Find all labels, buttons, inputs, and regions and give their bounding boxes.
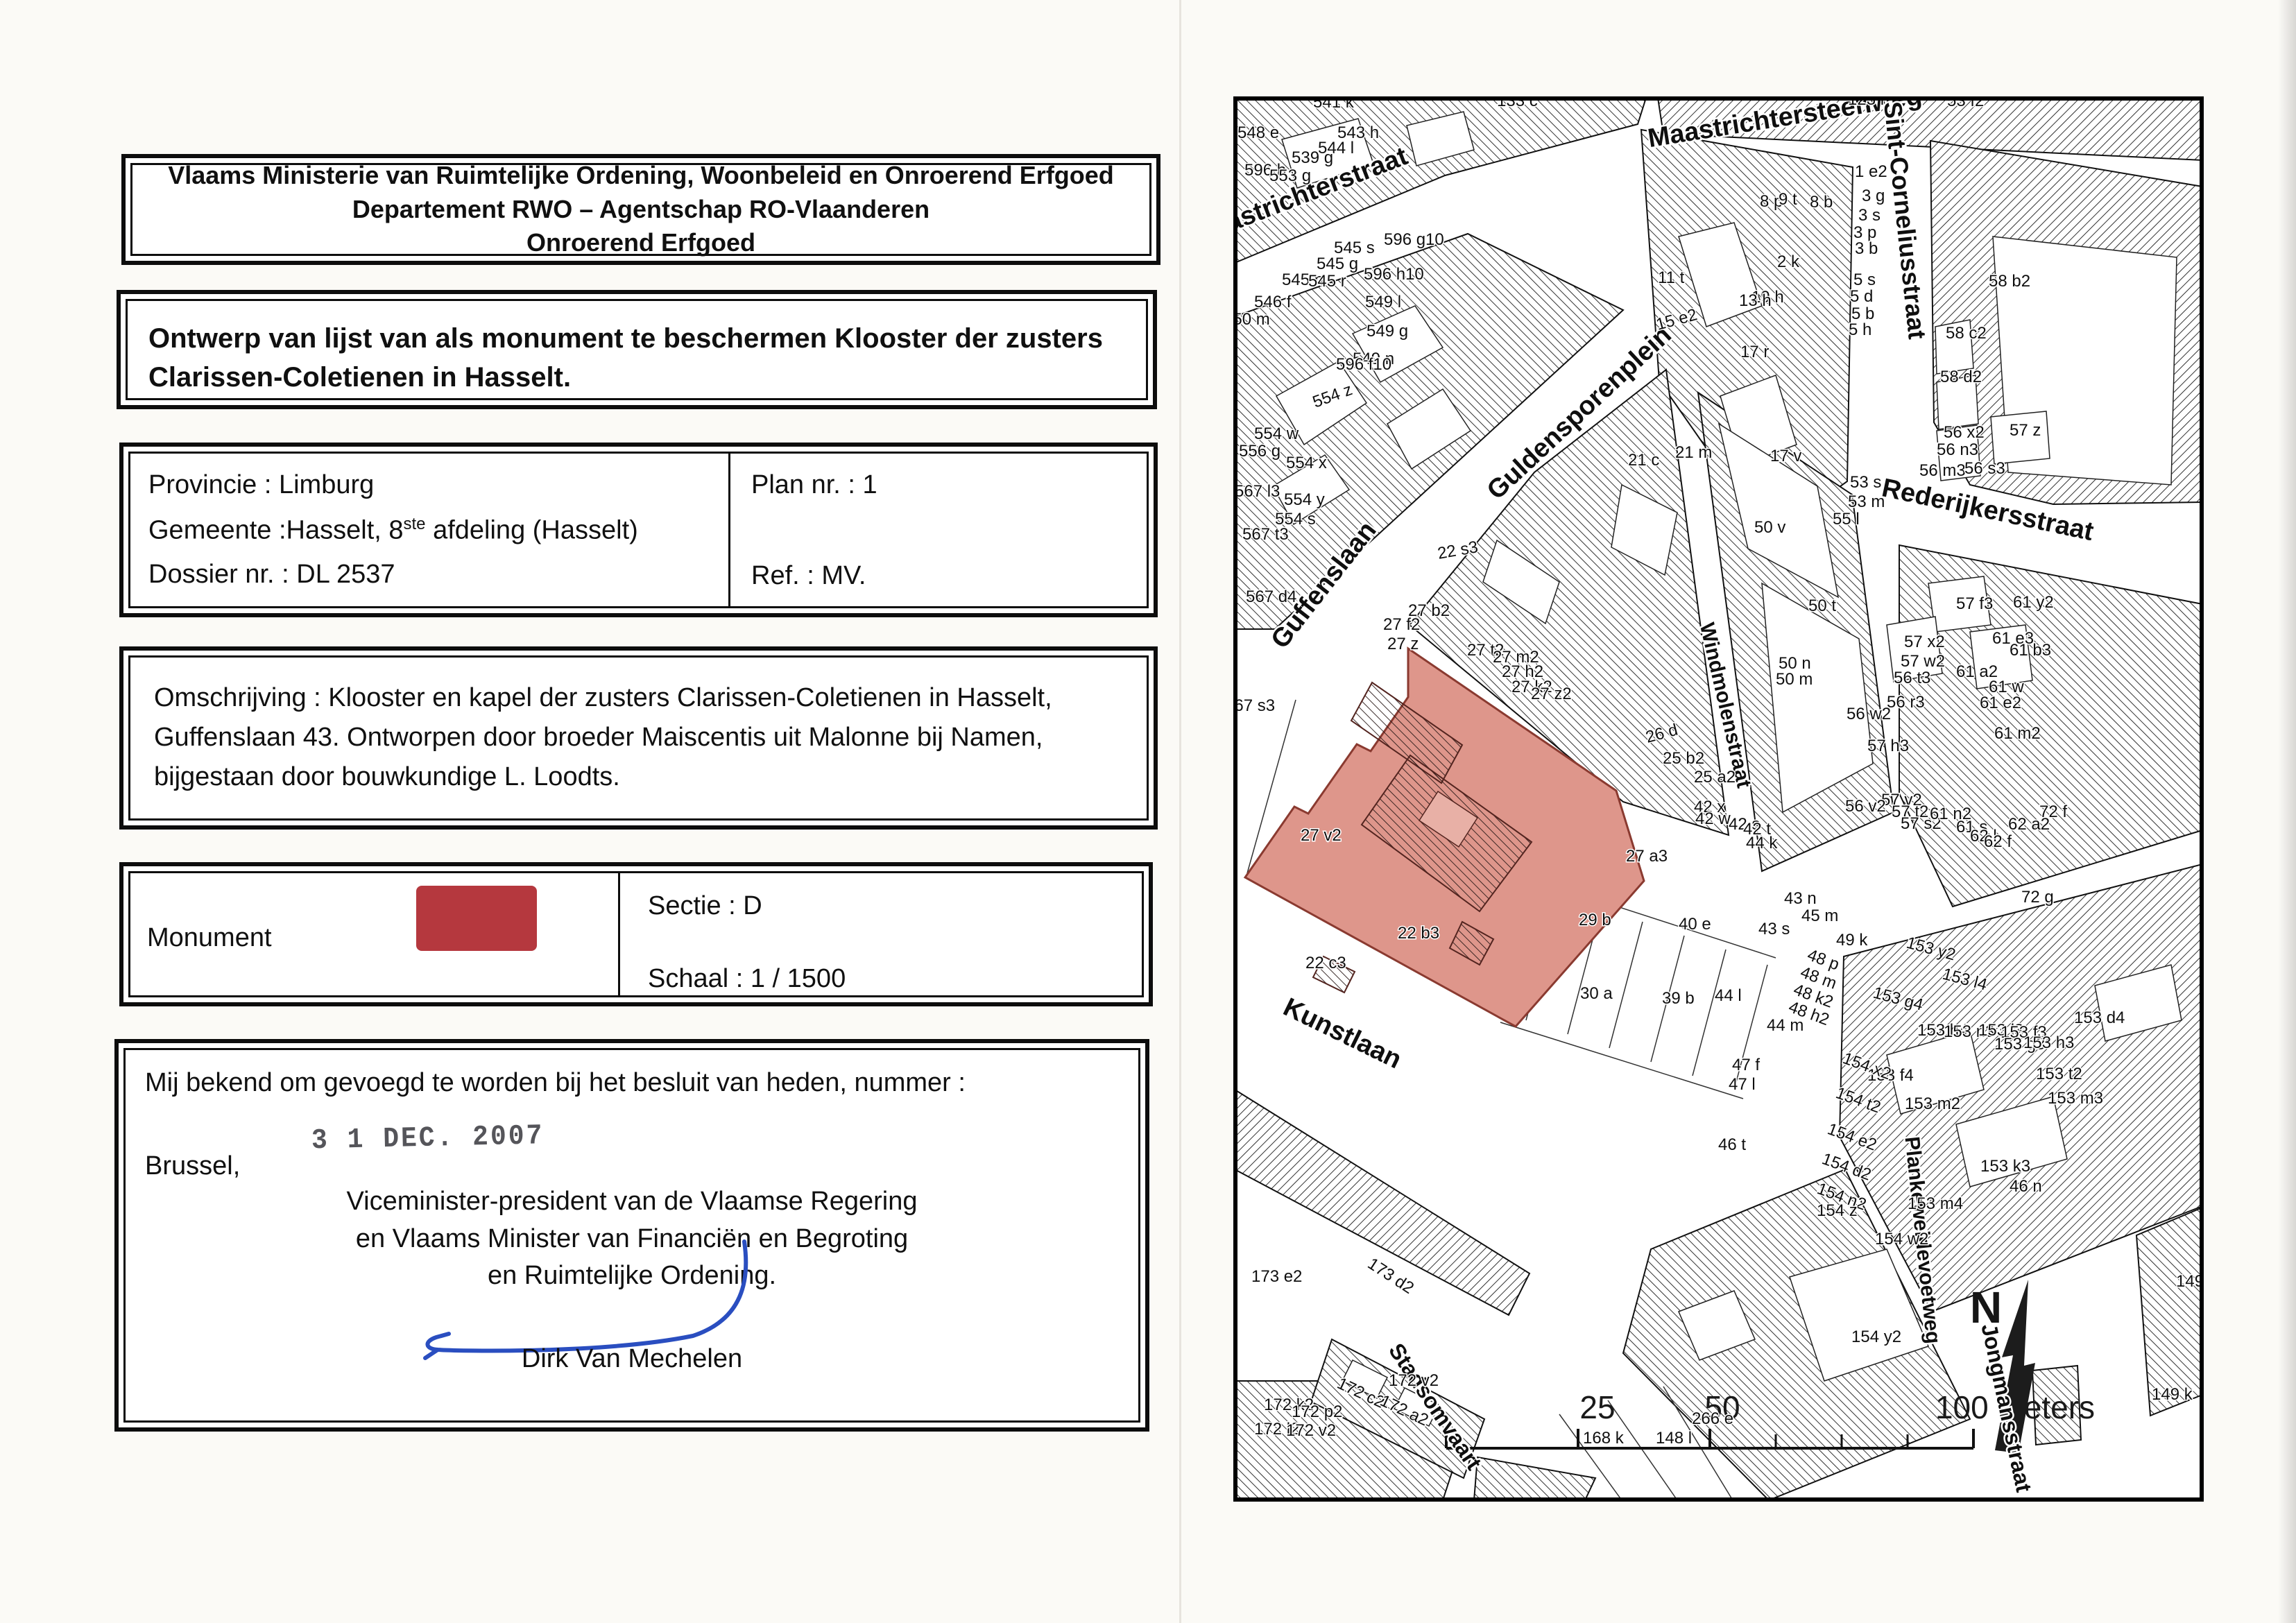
parcel-label: 596 f10 — [1336, 355, 1391, 374]
parcel-label: 46 n — [2010, 1177, 2042, 1196]
parcel-label: 153 d4 — [2074, 1008, 2125, 1027]
parcel-label: 154 y2 — [1851, 1328, 1901, 1346]
scanned-document-page: Vlaams Ministerie van Ruimtelijke Ordeni… — [0, 0, 2296, 1623]
gemeente-field: Gemeente :Hasselt, 8ste afdeling (Hassel… — [148, 515, 721, 546]
parcel-label: 30 a — [1580, 984, 1613, 1003]
parcel-label: 548 e — [1237, 123, 1279, 142]
parcel-label: 546 f — [1254, 293, 1292, 311]
parcel-label: 567 s3 — [1233, 696, 1275, 715]
omschrijving-box: Omschrijving : Klooster en kapel der zus… — [119, 646, 1158, 830]
parcel-label: 8 b — [1810, 193, 1833, 212]
omschrijving-text: Omschrijving : Klooster en kapel der zus… — [154, 683, 1052, 791]
parcel-label: 554 x — [1286, 454, 1327, 472]
parcel-label: 556 g — [1239, 442, 1280, 461]
document-title-box: Ontwerp van lijst van als monument te be… — [117, 290, 1157, 409]
ministry-header-box: Vlaams Ministerie van Ruimtelijke Ordeni… — [121, 154, 1160, 265]
parcel-label: 154 z — [1817, 1201, 1858, 1220]
scale-label-25: 25 — [1579, 1389, 1615, 1425]
document-title: Ontwerp van lijst van als monument te be… — [148, 319, 1125, 397]
parcel-label: 49 k — [1836, 931, 1868, 950]
signature-box: Mij bekend om gevoegd te worden bij het … — [114, 1039, 1149, 1432]
parcel-label: 168 k — [1583, 1429, 1625, 1448]
ref-field: Ref. : MV. — [751, 561, 1140, 591]
parcel-label: 53 s — [1850, 473, 1881, 492]
parcel-label: 153 m4 — [1908, 1194, 1963, 1213]
provincie-field: Provincie : Limburg — [148, 470, 721, 500]
parcel-label: 3 g — [1862, 187, 1885, 205]
plan-ref-cell: Plan nr. : 1 Ref. : MV. — [728, 454, 1147, 606]
parcel-label: 3 b — [1855, 239, 1878, 258]
plan-field: Plan nr. : 1 — [751, 470, 1140, 500]
parcel-label: 50 t — [1808, 596, 1836, 615]
parcel-label: 149 k — [2152, 1385, 2193, 1404]
parcel-label: 172 v2 — [1286, 1421, 1336, 1440]
parcel-label: 40 e — [1679, 915, 1711, 934]
parcel-label: 57 x2 — [1904, 633, 1945, 651]
parcel-label: 56 s3 — [1964, 459, 2005, 478]
parcel-label: 53 m — [1848, 492, 1885, 511]
parcel-label: 153 m2 — [1905, 1094, 1960, 1113]
parcel-label: 549 l — [1365, 293, 1401, 311]
parcel-label: 56 m3 — [1919, 461, 1966, 480]
parcel-label: 154 w2 — [1875, 1230, 1928, 1248]
parcel-label: 2 k — [1777, 252, 1800, 271]
parcel-label: 44 l — [1715, 986, 1742, 1005]
parcel-label: 27 v2 — [1301, 826, 1342, 845]
parcel-label: 47 l — [1729, 1075, 1756, 1094]
parcel-label: 11 t — [1658, 268, 1685, 287]
parcel-label: 22 c3 — [1305, 954, 1346, 972]
parcel-label: 57 h3 — [1867, 737, 1909, 755]
parcel-label: 596 g10 — [1384, 230, 1444, 249]
parcel-label: 13 h — [1739, 291, 1772, 310]
parcel-label: 72 g — [2021, 888, 2054, 907]
parcel-label: 58 c2 — [1946, 324, 1987, 343]
parcel-label: 567 l3 — [1235, 482, 1280, 501]
parcel-label: 550 m — [1233, 310, 1270, 329]
parcel-label: 22 b3 — [1398, 924, 1439, 943]
parcel-label: 57 w2 — [1901, 652, 1945, 671]
parcel-label: 61 e2 — [1980, 694, 2021, 712]
parcel-label: 596 h10 — [1364, 265, 1424, 284]
parcel-label: 27 f2 — [1383, 615, 1420, 634]
parcel-label: 553 g — [1269, 166, 1311, 185]
parcel-label: 56 r3 — [1887, 693, 1925, 712]
parcel-label: 21 m — [1675, 443, 1712, 462]
parcel-label: 549 g — [1367, 322, 1408, 341]
parcel-label: 56 n3 — [1937, 440, 1978, 459]
parcel-label: 25 a2 — [1694, 768, 1736, 787]
parcel-label: 21 c — [1628, 451, 1659, 470]
parcel-label: 56 x2 — [1944, 423, 1985, 442]
parcel-label: 148 l — [1656, 1429, 1692, 1448]
date-stamp: 3 1 DEC. 2007 — [311, 1120, 545, 1157]
parcel-label: 57 z — [2010, 421, 2041, 440]
parcel-label: 61 b3 — [2010, 641, 2051, 660]
signature-stroke — [425, 1242, 746, 1358]
parcel-label: 50 v — [1754, 518, 1785, 537]
parcel-label: 58 b2 — [1989, 272, 2030, 291]
dossier-info-box: Provincie : Limburg Gemeente :Hasselt, 8… — [119, 443, 1158, 617]
ministry-line1: Vlaams Ministerie van Ruimtelijke Ordeni… — [132, 159, 1149, 193]
minister-role-line: Viceminister-president van de Vlaamse Re… — [126, 1186, 1138, 1218]
parcel-label: 29 b — [1579, 911, 1611, 929]
parcel-label: 172 p2 — [1292, 1402, 1342, 1421]
parcel-label: 46 t — [1718, 1135, 1746, 1154]
dossier-field: Dossier nr. : DL 2537 — [148, 560, 721, 590]
parcel-label: 153 t2 — [2036, 1065, 2082, 1083]
parcel-label: 567 t3 — [1242, 525, 1289, 544]
parcel-label: 44 k — [1746, 834, 1778, 852]
parcel-label: 43 s — [1758, 920, 1790, 938]
parcel-label: 266 e — [1692, 1409, 1733, 1428]
besluit-line: Mij bekend om gevoegd te worden bij het … — [145, 1068, 966, 1098]
parcel-label: 61 y2 — [2013, 593, 2054, 612]
parcel-label: 43 n — [1784, 889, 1817, 908]
parcel-label: 42 w — [1695, 809, 1731, 828]
parcel-label: 173 e2 — [1251, 1267, 1302, 1286]
monument-swatch — [416, 886, 537, 951]
ministry-line2: Departement RWO – Agentschap RO-Vlaander… — [132, 193, 1149, 227]
parcel-label: 27 a3 — [1626, 847, 1668, 866]
city-label: Brussel, — [145, 1151, 240, 1181]
parcel-label: 567 d4 — [1246, 587, 1296, 606]
parcel-label: 5 h — [1849, 320, 1871, 339]
parcel-label: 153 m3 — [2048, 1089, 2103, 1108]
parcel-label: 5 d — [1850, 287, 1873, 306]
parcel-label: 72 f — [2039, 802, 2067, 821]
street-label: Kunstlaan — [1278, 993, 1406, 1074]
parcel-label: 554 y — [1284, 490, 1325, 509]
schaal-field: Schaal : 1 / 1500 — [648, 964, 1142, 994]
parcel-label: 55 l — [1833, 510, 1860, 529]
parcel-label: 27 z — [1387, 635, 1419, 653]
parcel-label: 62 f — [1984, 832, 2012, 851]
parcel-label: 56 v2 — [1845, 797, 1886, 816]
cadastral-map: 25 50 100 Meters N MaastrichtersteenwegM… — [1233, 96, 2204, 1502]
sectie-schaal-cell: Sectie : D Schaal : 1 / 1500 — [618, 873, 1142, 995]
parcel-label: 3 s — [1858, 206, 1881, 225]
parcel-label: 47 f — [1732, 1056, 1760, 1074]
parcel-label: 56 w2 — [1847, 705, 1891, 723]
parcel-label: 27 z2 — [1531, 685, 1572, 703]
parcel-label: 5 s — [1853, 270, 1876, 289]
parcel-label: 545 r — [1308, 272, 1346, 291]
parcel-label: 153 h3 — [2023, 1033, 2074, 1052]
parcel-label: 9 t — [1779, 190, 1797, 209]
parcel-label: 1 e2 — [1855, 162, 1887, 181]
parcel-label: 39 b — [1662, 989, 1695, 1008]
parcel-label: 50 m — [1776, 670, 1813, 689]
parcel-label: 539 g — [1292, 148, 1333, 167]
parcel-label: 45 m — [1801, 907, 1838, 925]
ministry-line3: Onroerend Erfgoed — [132, 226, 1149, 260]
parcel-label: 57 f3 — [1956, 594, 1993, 613]
parcel-label: 17 r — [1740, 343, 1769, 361]
parcel-label: 554 w — [1254, 424, 1299, 443]
parcel-label: 25 b2 — [1663, 749, 1704, 768]
parcel-label: 61 m2 — [1994, 724, 2041, 743]
parcel-label: 172 v2 — [1389, 1371, 1439, 1390]
signer-name: Dirk Van Mechelen — [126, 1344, 1138, 1374]
sectie-field: Sectie : D — [648, 891, 1142, 921]
scan-edge-shadow — [2278, 0, 2296, 1623]
parcel-label: 153 k3 — [1980, 1157, 2030, 1176]
parcel-label: 56 t3 — [1894, 669, 1930, 687]
legend-box: Monument Sectie : D Schaal : 1 / 1500 — [119, 862, 1153, 1006]
page-fold-line — [1179, 0, 1181, 1623]
parcel-label: 17 v — [1770, 447, 1801, 465]
monument-legend-label: Monument — [147, 923, 272, 953]
parcel-label: 58 d2 — [1940, 368, 1982, 386]
